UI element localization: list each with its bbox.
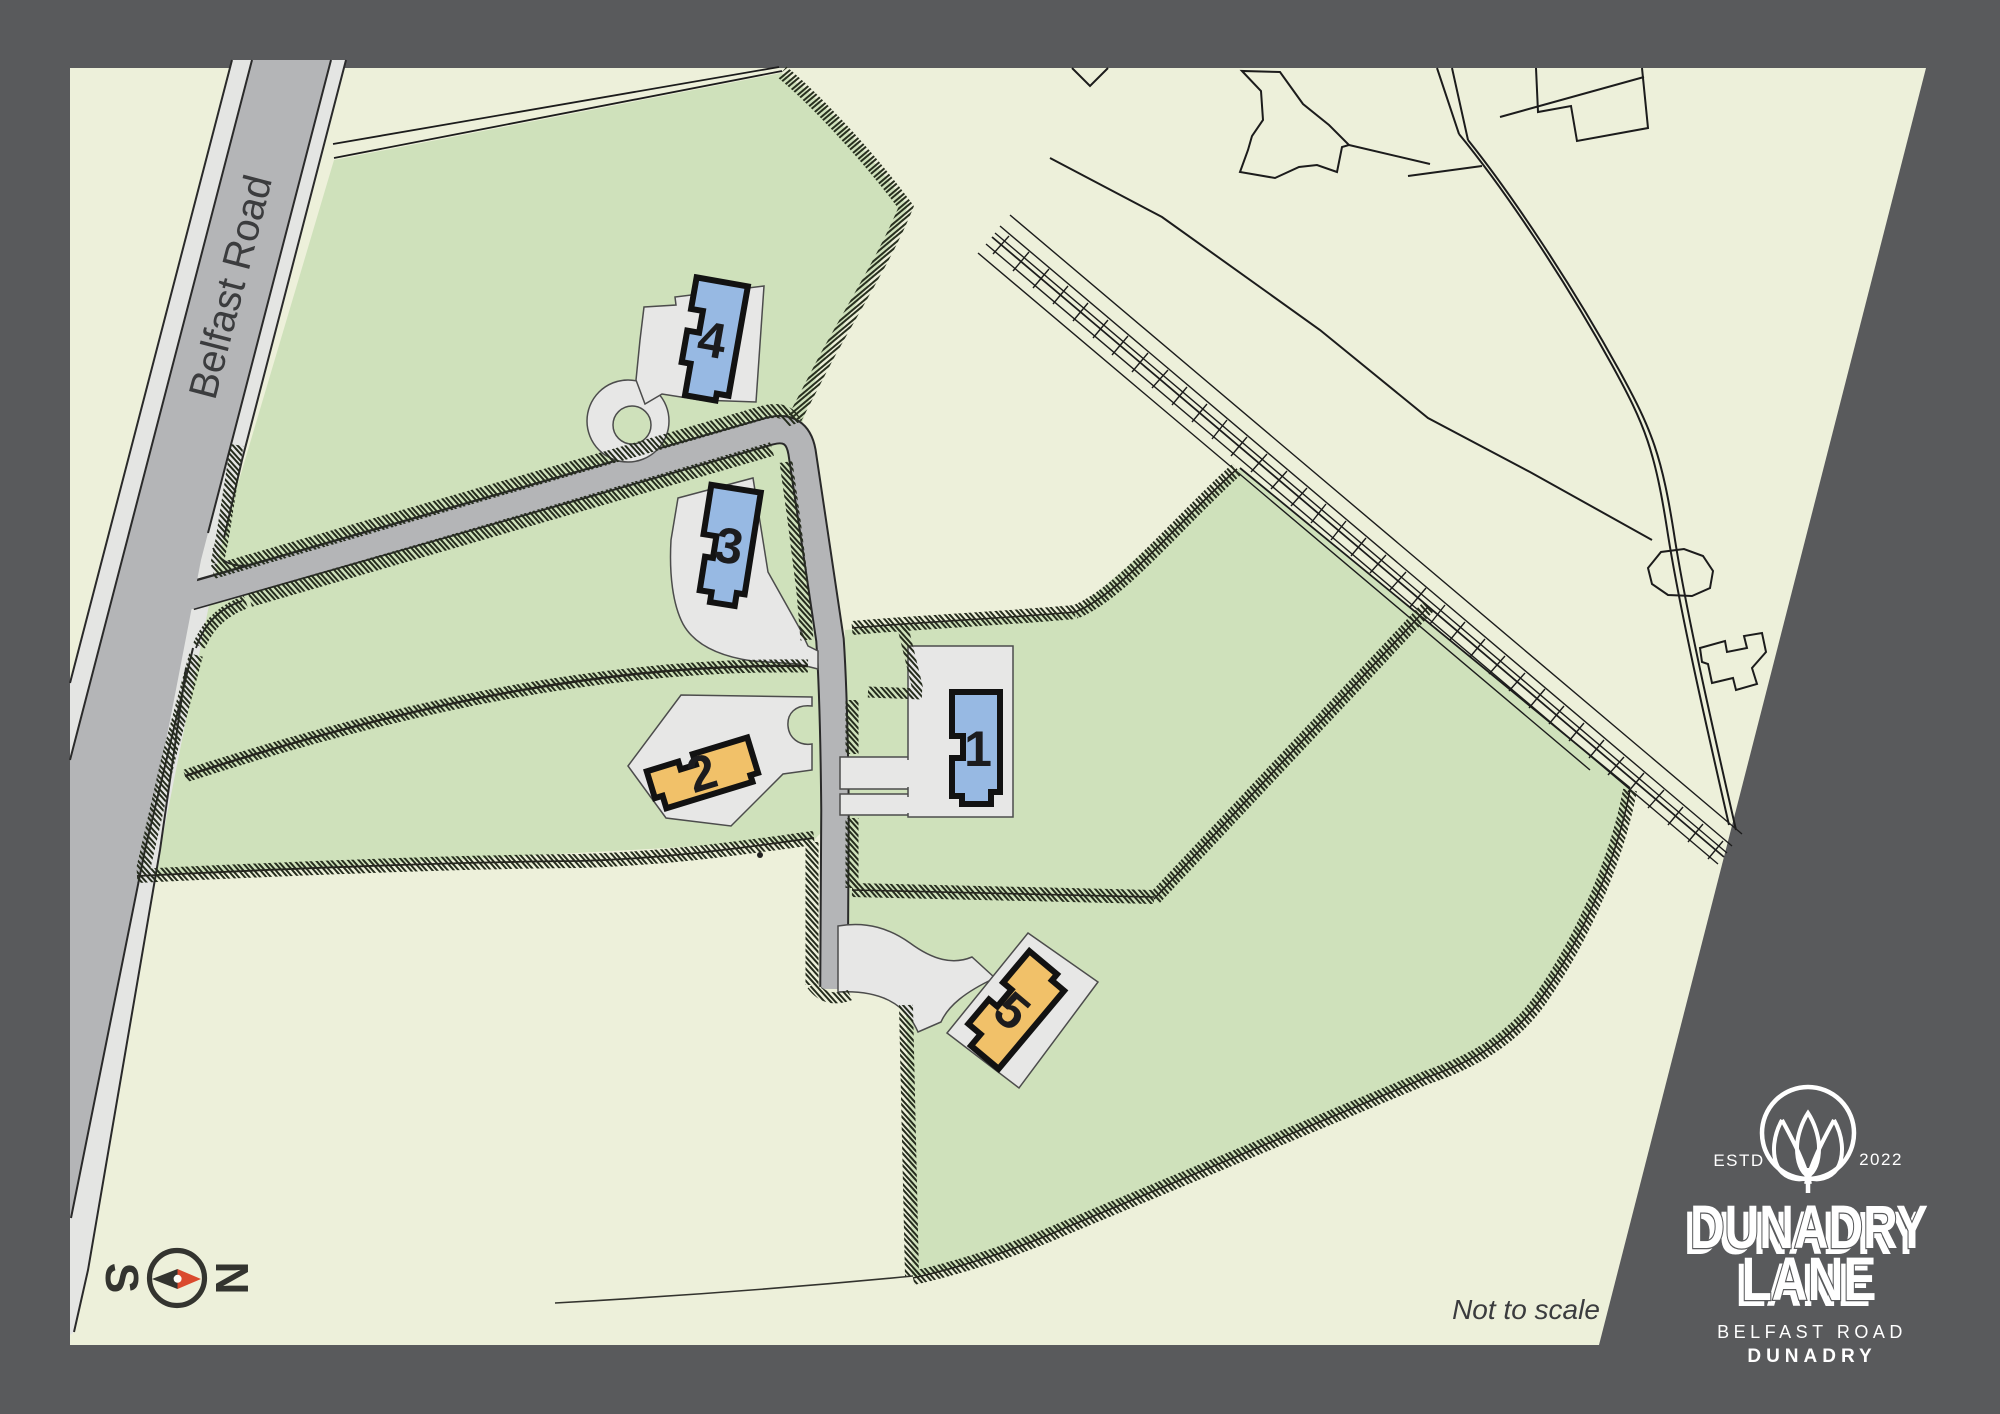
svg-text:LANE: LANE	[1742, 1245, 1877, 1313]
svg-text:N: N	[206, 1261, 258, 1294]
svg-text:S: S	[96, 1263, 148, 1294]
svg-text:ESTD: ESTD	[1713, 1151, 1764, 1170]
svg-text:Not to scale: Not to scale	[1452, 1294, 1600, 1325]
svg-text:1: 1	[964, 721, 992, 777]
svg-text:2022: 2022	[1859, 1150, 1903, 1169]
svg-text:DUNADRY: DUNADRY	[1747, 1346, 1876, 1367]
svg-text:BELFAST ROAD: BELFAST ROAD	[1717, 1322, 1907, 1342]
